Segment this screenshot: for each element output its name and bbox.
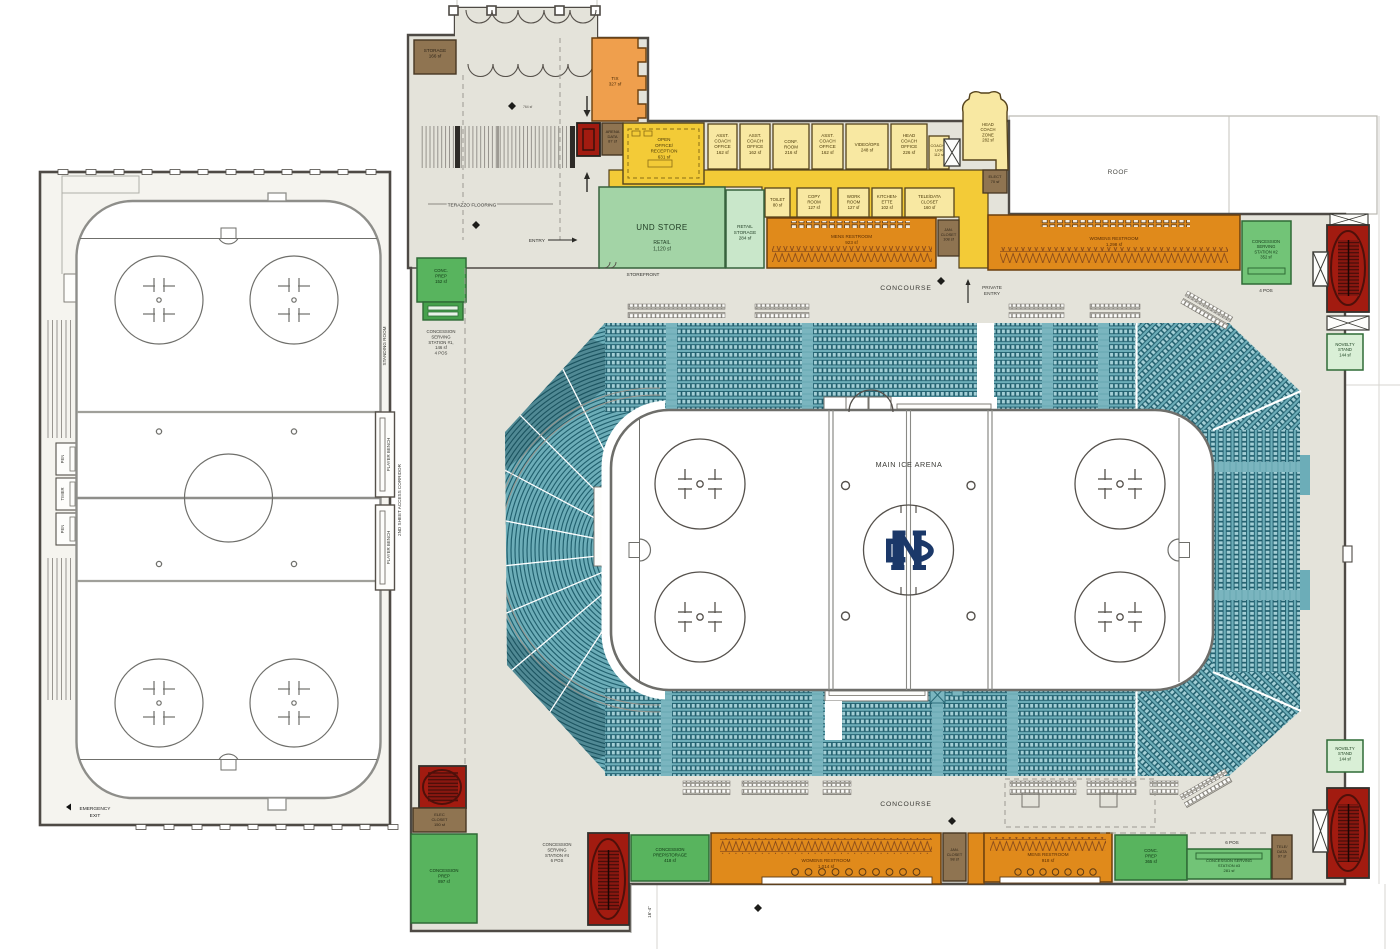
svg-text:282 sf: 282 sf (982, 138, 994, 143)
svg-text:UND STORE: UND STORE (636, 223, 687, 232)
svg-text:RETAIL: RETAIL (653, 240, 670, 246)
svg-text:2ND SHEET ACCESS CORRIDOR: 2ND SHEET ACCESS CORRIDOR (397, 463, 402, 536)
svg-text:764 sf: 764 sf (523, 105, 532, 109)
svg-text:HEAD: HEAD (903, 133, 916, 138)
svg-text:EXIT: EXIT (90, 813, 101, 819)
svg-text:WOMENS RESTROOM: WOMENS RESTROOM (802, 858, 851, 863)
svg-text:352 sf: 352 sf (1260, 255, 1272, 260)
svg-text:ENTRY: ENTRY (529, 238, 546, 244)
svg-text:162 sf: 162 sf (749, 150, 762, 155)
svg-text:OFFICE: OFFICE (819, 144, 836, 149)
svg-text:COACH: COACH (901, 139, 917, 144)
svg-text:RETAIL: RETAIL (737, 224, 753, 229)
svg-text:MENS RESTROOM: MENS RESTROOM (831, 234, 872, 239)
svg-text:216 sf: 216 sf (785, 150, 798, 155)
svg-text:CONCOURSE: CONCOURSE (880, 285, 931, 292)
svg-text:PREP/STORAGE: PREP/STORAGE (653, 852, 687, 857)
svg-text:6 POS: 6 POS (551, 858, 564, 863)
svg-text:COACH: COACH (747, 139, 763, 144)
svg-text:ASST.: ASST. (749, 133, 762, 138)
svg-text:STANDING ROOM: STANDING ROOM (382, 326, 387, 365)
svg-text:RECEPTION: RECEPTION (651, 149, 678, 154)
svg-text:TERAZZO FLOORING: TERAZZO FLOORING (448, 203, 497, 209)
svg-text:ROOM: ROOM (784, 145, 798, 150)
svg-text:CONCESSION: CONCESSION (543, 842, 572, 847)
svg-text:COACH: COACH (714, 139, 730, 144)
svg-text:CONCESSION: CONCESSION (430, 868, 459, 873)
svg-text:4 POS: 4 POS (435, 351, 448, 356)
svg-text:98 sf: 98 sf (950, 857, 959, 862)
svg-text:PRIVATE: PRIVATE (982, 285, 1002, 291)
svg-text:ROOM: ROOM (847, 199, 861, 204)
svg-text:1,298 sf: 1,298 sf (1106, 242, 1123, 247)
svg-text:127 sf: 127 sf (808, 205, 821, 210)
svg-text:PREP: PREP (438, 873, 450, 878)
svg-text:PLAYER BENCH: PLAYER BENCH (386, 438, 391, 472)
svg-text:127 sf: 127 sf (848, 205, 861, 210)
svg-text:ENTRY: ENTRY (984, 291, 1001, 297)
svg-text:112 sf: 112 sf (934, 153, 945, 157)
svg-text:1,014 sf: 1,014 sf (818, 864, 835, 869)
svg-text:PEN: PEN (60, 455, 65, 464)
svg-text:PEN: PEN (60, 525, 65, 534)
svg-text:150 sf: 150 sf (434, 822, 446, 827)
svg-text:STORAGE: STORAGE (424, 48, 446, 53)
svg-text:OFFICE/: OFFICE/ (655, 143, 674, 148)
svg-text:CLOSET: CLOSET (921, 199, 939, 204)
svg-text:162 sf: 162 sf (716, 150, 729, 155)
svg-text:ASST.: ASST. (821, 133, 834, 138)
svg-text:TIX: TIX (611, 76, 618, 81)
svg-text:281 sf: 281 sf (1224, 868, 1236, 873)
svg-text:162 sf: 162 sf (821, 150, 834, 155)
svg-text:TOILET: TOILET (770, 197, 785, 202)
svg-text:ROOF: ROOF (1108, 169, 1129, 176)
svg-text:144 sf: 144 sf (1339, 352, 1351, 357)
svg-text:6 POS: 6 POS (1225, 840, 1239, 845)
svg-text:COACH: COACH (819, 139, 835, 144)
svg-text:284 sf: 284 sf (739, 236, 752, 241)
svg-text:STATION #1,: STATION #1, (428, 340, 453, 345)
svg-text:PREP: PREP (435, 273, 447, 278)
svg-text:PLAYER BENCH: PLAYER BENCH (386, 531, 391, 565)
svg-text:EMERGENCY: EMERGENCY (80, 806, 112, 812)
svg-text:MAIN ICE ARENA: MAIN ICE ARENA (876, 460, 943, 469)
svg-text:ROOM: ROOM (807, 199, 821, 204)
svg-text:CONC.: CONC. (434, 268, 448, 273)
svg-text:166 sf: 166 sf (429, 54, 442, 59)
svg-text:STOREFRONT: STOREFRONT (627, 272, 660, 278)
svg-text:COPY: COPY (808, 194, 820, 199)
svg-text:SERVING: SERVING (547, 847, 567, 852)
svg-text:KITCHEN-: KITCHEN- (877, 194, 898, 199)
svg-text:WOMENS RESTROOM: WOMENS RESTROOM (1090, 236, 1139, 241)
svg-text:OFFICE: OFFICE (714, 144, 731, 149)
svg-text:OFFICE: OFFICE (747, 144, 764, 149)
svg-text:70 sf: 70 sf (991, 179, 1001, 184)
svg-text:OPEN: OPEN (657, 137, 670, 142)
svg-text:PREP: PREP (1145, 853, 1157, 858)
svg-text:STATION #4: STATION #4 (545, 853, 570, 858)
svg-text:146 sf: 146 sf (435, 345, 448, 350)
svg-text:1,120 sf: 1,120 sf (653, 246, 671, 252)
svg-text:LKR: LKR (935, 149, 943, 153)
svg-text:OFFICE: OFFICE (901, 144, 918, 149)
svg-text:631 sf: 631 sf (658, 154, 671, 159)
svg-text:ASST.: ASST. (716, 133, 729, 138)
svg-text:102 sf: 102 sf (881, 205, 894, 210)
svg-text:87 sf: 87 sf (608, 139, 618, 144)
svg-text:80 sf: 80 sf (773, 202, 783, 207)
svg-text:160 sf: 160 sf (924, 205, 937, 210)
svg-text:CONC.: CONC. (1144, 848, 1158, 853)
svg-text:16'-4": 16'-4" (647, 906, 652, 918)
svg-text:VIDEO/OPS: VIDEO/OPS (855, 142, 880, 147)
svg-text:152 sf: 152 sf (435, 279, 448, 284)
svg-text:897 sf: 897 sf (438, 879, 451, 884)
svg-text:SERVING: SERVING (431, 334, 451, 339)
svg-text:108 sf: 108 sf (943, 237, 955, 242)
svg-text:CONCESSION: CONCESSION (427, 329, 456, 334)
svg-text:CONCOURSE: CONCOURSE (880, 801, 931, 808)
svg-text:CONF.: CONF. (784, 139, 798, 144)
svg-text:918 sf: 918 sf (1042, 858, 1055, 863)
svg-text:CONCESSION: CONCESSION (656, 847, 685, 852)
svg-text:97 sf: 97 sf (1278, 854, 1287, 859)
svg-text:418 sf: 418 sf (664, 858, 677, 863)
svg-text:TELE/DATA: TELE/DATA (918, 194, 941, 199)
svg-text:ETTE: ETTE (882, 199, 893, 204)
svg-text:4 POS: 4 POS (1259, 288, 1273, 293)
svg-text:MENS RESTROOM: MENS RESTROOM (1027, 852, 1068, 857)
svg-text:327 sf: 327 sf (609, 82, 622, 87)
svg-text:226 sf: 226 sf (903, 150, 916, 155)
svg-text:923 sf: 923 sf (845, 240, 858, 245)
svg-text:TIMER: TIMER (60, 487, 65, 500)
svg-text:144 sf: 144 sf (1339, 756, 1351, 761)
svg-text:365 sf: 365 sf (1145, 859, 1158, 864)
svg-text:STORAGE: STORAGE (734, 230, 756, 235)
svg-text:248 sf: 248 sf (861, 148, 874, 153)
svg-text:WORK: WORK (847, 194, 861, 199)
